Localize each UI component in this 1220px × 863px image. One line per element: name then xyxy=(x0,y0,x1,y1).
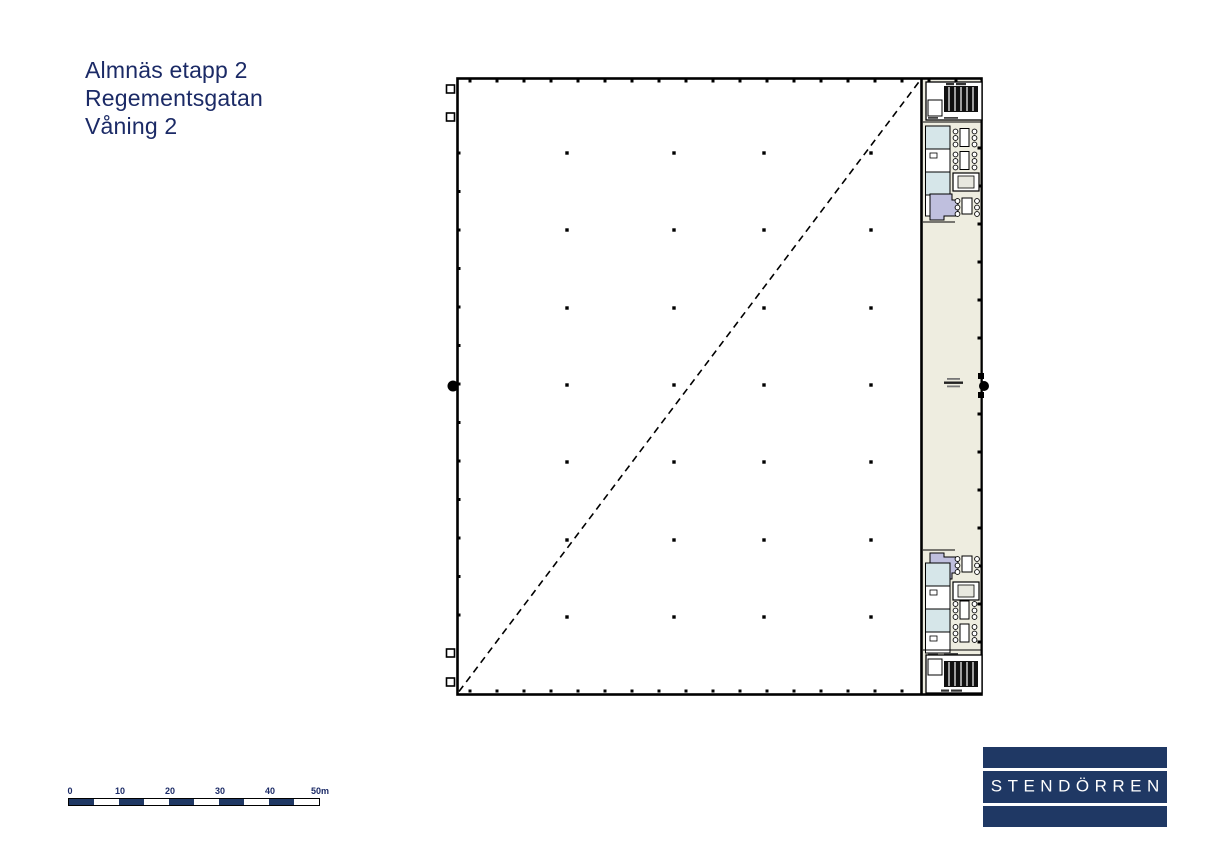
tick-mark xyxy=(874,80,877,83)
grid-dot xyxy=(565,151,568,154)
scale-tick-label: 0 xyxy=(67,786,72,796)
grid-dot xyxy=(869,460,872,463)
grid-dot xyxy=(762,306,765,309)
tick-mark xyxy=(685,690,688,693)
grid-dot xyxy=(565,460,568,463)
chair-icon xyxy=(953,608,958,613)
floor-plan xyxy=(440,65,1000,710)
grid-dot xyxy=(869,615,872,618)
scale-tick-label: 10 xyxy=(115,786,125,796)
grid-dot xyxy=(762,383,765,386)
wall-bump xyxy=(978,392,984,398)
grid-dot xyxy=(672,306,675,309)
grid-dot xyxy=(869,228,872,231)
grid-dot xyxy=(762,538,765,541)
grid-dot xyxy=(565,538,568,541)
stendorren-logo: STENDÖRREN xyxy=(983,747,1167,827)
grid-dot xyxy=(869,538,872,541)
micro-label xyxy=(944,382,963,384)
tick-mark xyxy=(458,344,461,347)
micro-label xyxy=(941,690,949,692)
tick-mark xyxy=(847,690,850,693)
chair-icon xyxy=(975,199,980,204)
tick-mark xyxy=(469,690,472,693)
tick-mark xyxy=(820,690,823,693)
scale-segment xyxy=(169,799,194,805)
scale-segment xyxy=(69,799,94,805)
tick-mark xyxy=(523,690,526,693)
chair-icon xyxy=(953,615,958,620)
tick-mark xyxy=(793,690,796,693)
door-marker xyxy=(447,649,455,657)
tick-mark xyxy=(604,80,607,83)
tick-mark xyxy=(577,690,580,693)
wall-bump xyxy=(978,373,984,379)
tick-mark xyxy=(577,80,580,83)
chair-icon xyxy=(972,602,977,607)
chair-icon xyxy=(972,165,977,170)
chair-icon xyxy=(953,165,958,170)
chair-icon xyxy=(953,159,958,164)
tick-mark xyxy=(631,80,634,83)
grid-dot xyxy=(565,383,568,386)
grid-dot xyxy=(762,151,765,154)
right-edge-fittings xyxy=(978,373,989,398)
door-marker xyxy=(447,113,455,121)
tick-mark xyxy=(604,690,607,693)
tick-mark xyxy=(458,575,461,578)
grid-dot xyxy=(672,383,675,386)
grid-dot xyxy=(672,151,675,154)
micro-label xyxy=(944,117,958,119)
scale-segment xyxy=(244,799,269,805)
tick-mark xyxy=(766,80,769,83)
tick-mark xyxy=(458,460,461,463)
grid-dot xyxy=(672,228,675,231)
scale-tick-label: 20 xyxy=(165,786,175,796)
tick-mark xyxy=(820,80,823,83)
chair-icon xyxy=(953,631,958,636)
micro-label xyxy=(947,378,960,380)
grid-dot xyxy=(869,306,872,309)
tick-mark xyxy=(978,641,981,644)
chair-icon xyxy=(975,570,980,575)
chair-icon xyxy=(955,212,960,217)
wet-room xyxy=(926,609,951,632)
section-marker-dot xyxy=(448,381,459,392)
scale-segment xyxy=(194,799,219,805)
elevator-room xyxy=(928,100,942,116)
tick-mark xyxy=(458,229,461,232)
tick-mark xyxy=(458,306,461,309)
tick-mark xyxy=(978,413,981,416)
tick-mark xyxy=(496,690,499,693)
floor-plan-drawing xyxy=(440,65,1000,710)
tick-mark xyxy=(793,80,796,83)
chair-icon xyxy=(972,152,977,157)
floor-label: Våning 2 xyxy=(85,112,263,140)
table-top xyxy=(960,129,969,147)
tick-mark xyxy=(458,421,461,424)
grid-dot xyxy=(672,538,675,541)
scale-segment xyxy=(144,799,169,805)
street-name: Regementsgatan xyxy=(85,84,263,112)
table-top xyxy=(960,624,969,642)
fixture xyxy=(930,590,937,595)
tick-mark xyxy=(458,498,461,501)
scale-segments xyxy=(68,798,320,806)
meeting-table-with-chairs xyxy=(953,129,977,147)
tick-mark xyxy=(766,690,769,693)
chair-icon xyxy=(972,615,977,620)
wet-room xyxy=(926,126,951,149)
scale-bar: 0 10 20 30 40 50m xyxy=(68,786,328,808)
scale-labels: 0 10 20 30 40 50m xyxy=(68,786,328,797)
tick-mark xyxy=(978,223,981,226)
chair-icon xyxy=(975,557,980,562)
chair-icon xyxy=(955,570,960,575)
logo-wordmark: STENDÖRREN xyxy=(983,777,1167,797)
chair-icon xyxy=(972,625,977,630)
chair-icon xyxy=(953,142,958,147)
tick-mark xyxy=(469,80,472,83)
micro-label xyxy=(947,386,960,388)
tick-mark xyxy=(685,80,688,83)
chair-icon xyxy=(972,129,977,134)
chair-icon xyxy=(955,199,960,204)
grid-dot xyxy=(672,615,675,618)
door-marker xyxy=(447,85,455,93)
chair-icon xyxy=(972,608,977,613)
grid-dot xyxy=(565,228,568,231)
table-top xyxy=(958,585,974,597)
chair-icon xyxy=(975,563,980,568)
tick-mark xyxy=(901,80,904,83)
grid-dot xyxy=(869,151,872,154)
chair-icon xyxy=(972,159,977,164)
chair-icon xyxy=(972,638,977,643)
tick-mark xyxy=(978,489,981,492)
section-marker-dot xyxy=(979,381,989,391)
tick-mark xyxy=(978,603,981,606)
small-room xyxy=(926,149,951,172)
title-block: Almnäs etapp 2 Regementsgatan Våning 2 xyxy=(85,56,263,140)
wet-room xyxy=(926,172,951,195)
tick-mark xyxy=(712,690,715,693)
tick-mark xyxy=(739,80,742,83)
grid-dot xyxy=(672,460,675,463)
tick-mark xyxy=(978,299,981,302)
micro-label xyxy=(956,83,966,85)
wet-room xyxy=(926,563,951,586)
tick-mark xyxy=(550,690,553,693)
tick-mark xyxy=(631,690,634,693)
tick-mark xyxy=(658,80,661,83)
grid-dot xyxy=(762,460,765,463)
project-title: Almnäs etapp 2 xyxy=(85,56,263,84)
chair-icon xyxy=(953,136,958,141)
grid-dot xyxy=(565,615,568,618)
small-room xyxy=(926,586,951,609)
micro-label xyxy=(951,690,962,692)
chair-icon xyxy=(972,136,977,141)
fixture xyxy=(930,636,937,641)
grid-dot xyxy=(869,383,872,386)
chair-icon xyxy=(972,631,977,636)
micro-label xyxy=(928,117,938,119)
scale-tick-label: 50m xyxy=(311,786,329,796)
chair-icon xyxy=(955,205,960,210)
grid-dot xyxy=(762,615,765,618)
tick-mark xyxy=(496,80,499,83)
elevator-room xyxy=(928,659,942,675)
tick-mark xyxy=(978,261,981,264)
tick-mark xyxy=(874,690,877,693)
table-top xyxy=(962,556,972,572)
scale-segment xyxy=(94,799,119,805)
scale-segment xyxy=(269,799,294,805)
tick-mark xyxy=(978,147,981,150)
grid-dot xyxy=(565,306,568,309)
chair-icon xyxy=(953,602,958,607)
meeting-table-with-chairs xyxy=(955,198,979,216)
chair-icon xyxy=(955,563,960,568)
grid-dot xyxy=(762,228,765,231)
chair-icon xyxy=(953,638,958,643)
tick-mark xyxy=(901,690,904,693)
table-top xyxy=(960,601,969,619)
table-top xyxy=(962,198,972,214)
scale-tick-label: 40 xyxy=(265,786,275,796)
meeting-table-with-chairs xyxy=(953,601,977,619)
chair-icon xyxy=(975,205,980,210)
table-top xyxy=(960,152,969,170)
door-marker xyxy=(447,678,455,686)
fixture xyxy=(930,153,937,158)
chair-icon xyxy=(972,142,977,147)
tick-mark xyxy=(978,527,981,530)
scale-segment xyxy=(294,799,319,805)
chair-icon xyxy=(953,152,958,157)
building-outline xyxy=(458,79,982,695)
scale-tick-label: 30 xyxy=(215,786,225,796)
chair-icon xyxy=(975,212,980,217)
meeting-table-with-chairs xyxy=(953,152,977,170)
tick-mark xyxy=(458,537,461,540)
page: { "title_block": { "lines": ["Almnäs eta… xyxy=(0,0,1220,863)
chair-icon xyxy=(953,129,958,134)
tick-mark xyxy=(458,614,461,617)
tick-mark xyxy=(847,80,850,83)
tick-mark xyxy=(458,190,461,193)
table-top xyxy=(958,176,974,188)
micro-label xyxy=(946,83,954,85)
logo-stripe xyxy=(983,803,1167,806)
tick-mark xyxy=(458,152,461,155)
tick-mark xyxy=(458,267,461,270)
tick-mark xyxy=(523,80,526,83)
scale-segment xyxy=(219,799,244,805)
logo-stripe xyxy=(983,768,1167,771)
tick-mark xyxy=(658,690,661,693)
tick-mark xyxy=(978,451,981,454)
tick-mark xyxy=(978,337,981,340)
tick-mark xyxy=(739,690,742,693)
meeting-table-with-chairs xyxy=(955,556,979,574)
tick-mark xyxy=(550,80,553,83)
chair-icon xyxy=(955,557,960,562)
chair-icon xyxy=(953,625,958,630)
tick-mark xyxy=(712,80,715,83)
scale-segment xyxy=(119,799,144,805)
meeting-table-with-chairs xyxy=(953,624,977,642)
